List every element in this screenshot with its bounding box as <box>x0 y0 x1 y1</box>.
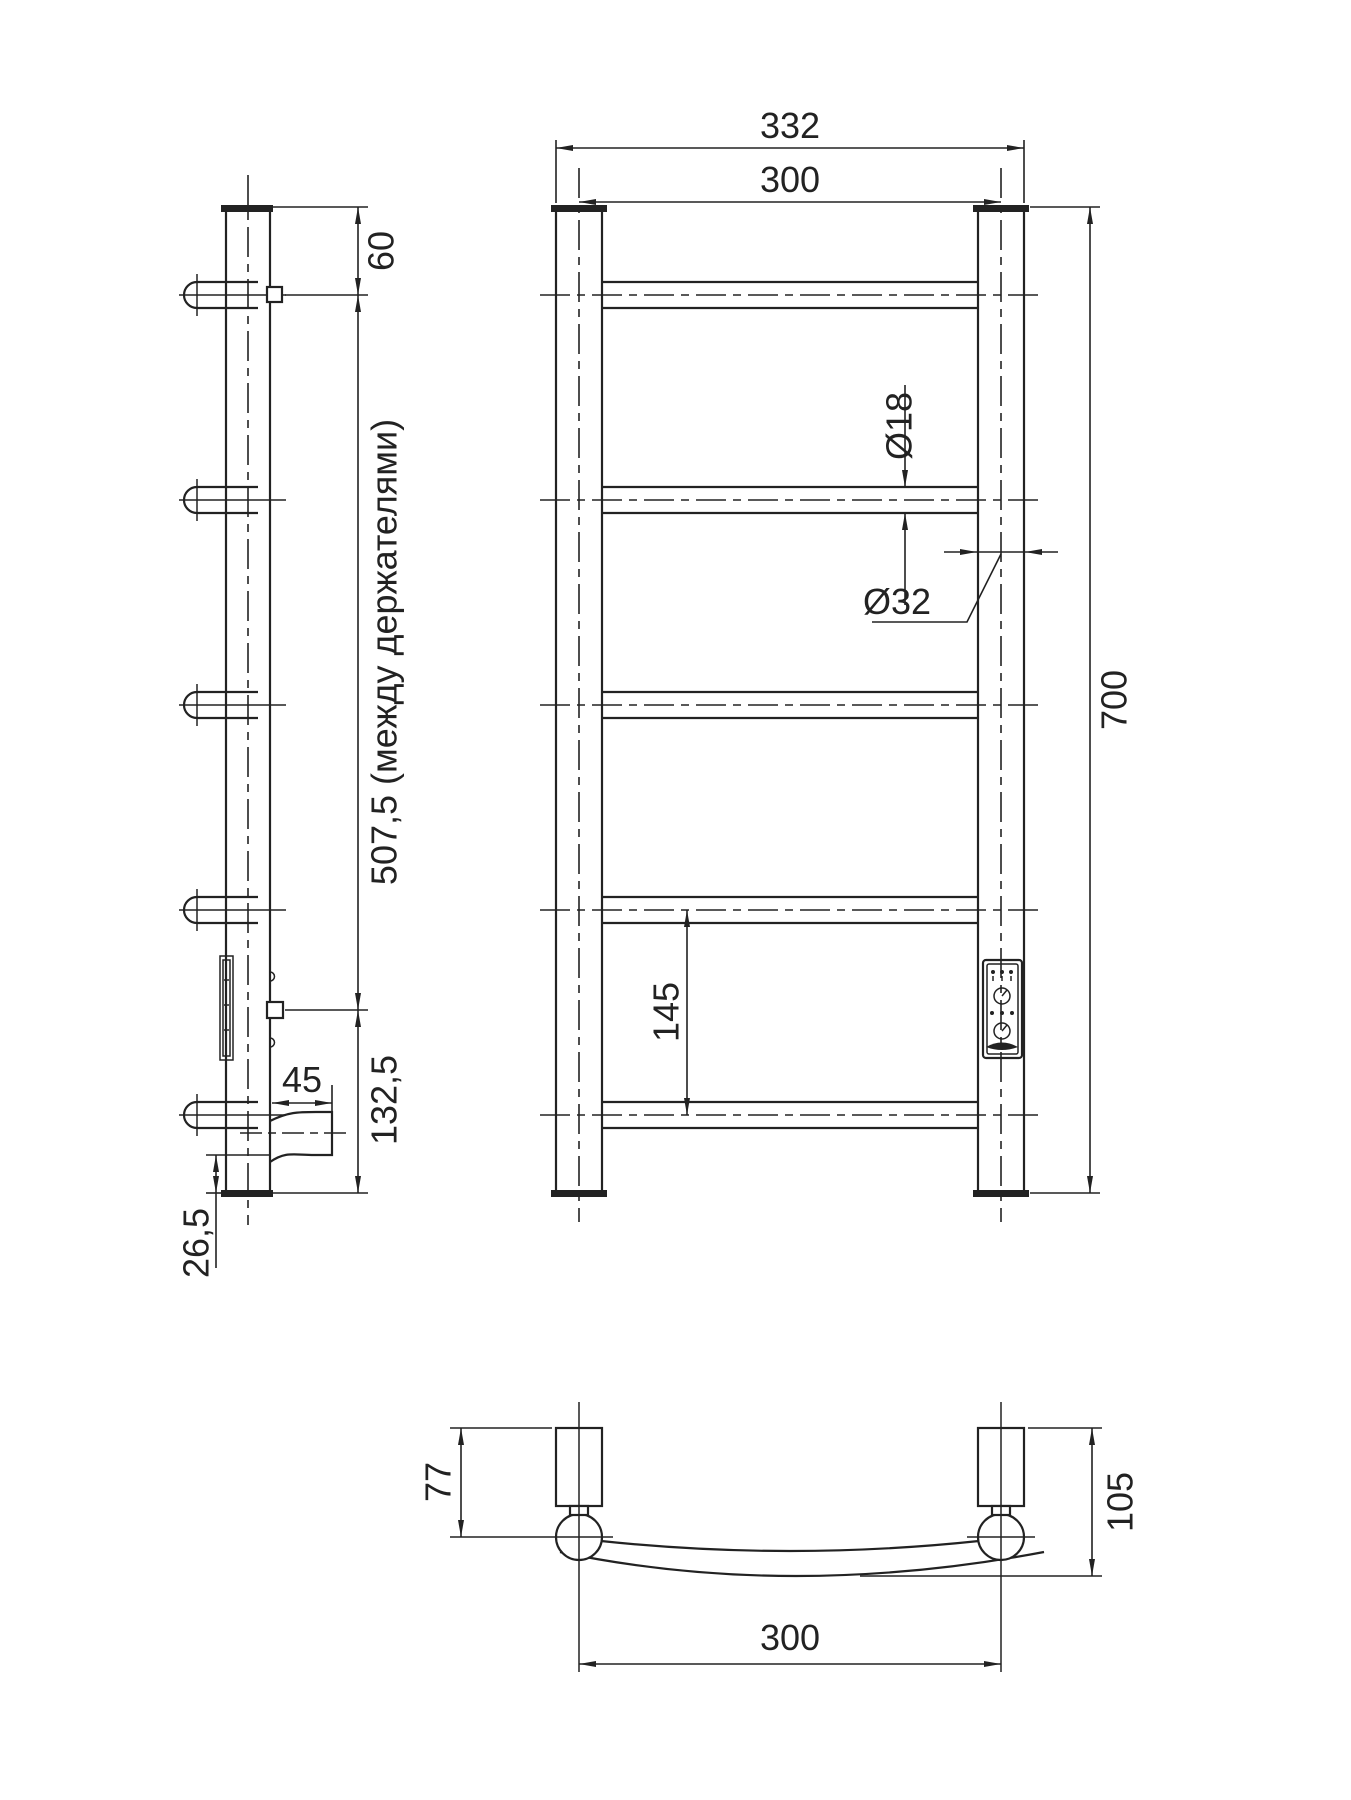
side-post-bottom-cap <box>221 1190 273 1197</box>
dot <box>990 1011 994 1015</box>
dim-label: 60 <box>361 231 402 271</box>
rail-inner-arc <box>601 1541 979 1551</box>
dim-label: Ø32 <box>863 581 931 622</box>
steam-icon <box>991 970 1013 981</box>
left-post-top-cap <box>551 205 607 212</box>
dim-label: 26,5 <box>176 1208 217 1278</box>
dim-rung-spacing: 145 <box>646 910 688 1115</box>
side-wall-holder-top <box>267 287 282 302</box>
rung-1 <box>540 282 1040 308</box>
dot <box>1000 1011 1004 1015</box>
dim-cable-length: 45 <box>272 1059 332 1112</box>
dim-label: 507,5 (между держателями) <box>364 419 405 885</box>
dim-top-offset: 60 <box>273 207 402 295</box>
dim-holder-to-bottom: 132,5 <box>273 1010 405 1193</box>
side-view: 60 507,5 (между держателями) 132,5 45 26… <box>176 175 405 1278</box>
rung-5 <box>540 1102 1040 1128</box>
left-post-bottom-cap <box>551 1190 607 1197</box>
steam-dot <box>1000 970 1004 974</box>
front-view: 332 300 Ø18 Ø32 700 <box>540 105 1135 1222</box>
technical-drawing-towel-rail: 60 507,5 (между держателями) 132,5 45 26… <box>0 0 1351 1800</box>
dim-label: 300 <box>760 159 820 200</box>
dot <box>1010 1011 1014 1015</box>
dim-cable-to-end: 26,5 <box>176 1155 271 1278</box>
dim-label: 300 <box>760 1617 820 1658</box>
dim-label: 332 <box>760 105 820 146</box>
dim-rung-diameter: Ø18 <box>879 385 920 605</box>
rung-3 <box>540 692 1040 718</box>
dim-label: 77 <box>418 1462 459 1502</box>
side-wall-holder-bottom <box>267 1002 283 1018</box>
dim-label: 45 <box>282 1059 322 1100</box>
drawing-svg: 60 507,5 (между держателями) 132,5 45 26… <box>0 0 1351 1800</box>
dim-rail-width-bottom: 300 <box>579 1617 1001 1664</box>
bottom-view: 77 105 300 <box>418 1402 1141 1672</box>
dim-label: Ø18 <box>879 392 920 460</box>
front-control-panel <box>983 960 1022 1058</box>
cable-outline <box>270 1112 332 1162</box>
steam-dot <box>991 970 995 974</box>
dim-label: 105 <box>1100 1472 1141 1532</box>
temp-dial-icon <box>994 1023 1010 1039</box>
right-post-bottom-cap <box>973 1190 1029 1197</box>
rung-2 <box>540 487 1040 513</box>
timer-dial-icon <box>994 988 1010 1004</box>
dial-pointer <box>1002 990 1007 996</box>
brand-swoosh-icon <box>986 1043 1018 1051</box>
dim-post-diameter: Ø32 <box>863 552 1058 622</box>
dim-label: 700 <box>1094 670 1135 730</box>
right-post-top-cap <box>973 205 1029 212</box>
dim-between-holders: 507,5 (между держателями) <box>285 295 405 1010</box>
dim-bracket-depth: 77 <box>418 1428 553 1537</box>
rail-outer-arc <box>560 1552 1044 1576</box>
mode-dots <box>990 1011 1014 1015</box>
dial-pointer <box>1002 1025 1007 1031</box>
steam-dot <box>1009 970 1013 974</box>
dim-label: 145 <box>646 982 687 1042</box>
dim-overall-height: 700 <box>1030 207 1135 1193</box>
dim-rail-width: 300 <box>579 159 1001 202</box>
dim-label: 132,5 <box>364 1055 405 1145</box>
rung-4 <box>540 897 1040 923</box>
side-post-top-cap <box>221 205 273 212</box>
